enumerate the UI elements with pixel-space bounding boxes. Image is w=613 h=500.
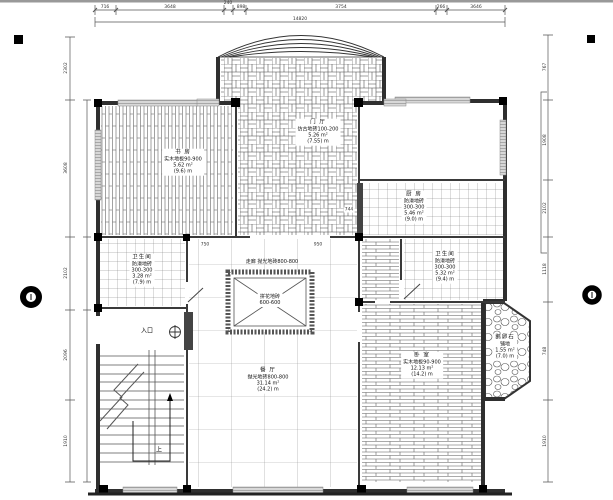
column (94, 304, 102, 312)
room-area: 5.32 m² (435, 270, 456, 276)
room-label-dining: 餐 厅 抛光地砖800-800 31.14 m² (24.2) m (246, 367, 291, 394)
room-spec: 实木地板90-900 (164, 156, 202, 162)
column (94, 99, 102, 107)
closet-floor-hatch (362, 239, 399, 300)
room-label-pebble: 鹅卵石 铺地 1.55 m² (7.0) m (493, 334, 517, 361)
dim-text: 1118 (542, 263, 548, 275)
room-area: 1.55 m² (495, 347, 515, 353)
dim-text: 1910 (542, 435, 548, 447)
dim-text: 898 (237, 4, 246, 10)
window-right-wall (500, 120, 506, 175)
medallion-label: 拼花地砖 600-600 (258, 293, 283, 307)
room-perimeter: (9.4) m (435, 276, 456, 282)
room-label-study: 书 房 实木地板90-900 5.62 m² (9.6) m (162, 149, 204, 176)
room-spec: 实木地板90-900 (403, 359, 441, 365)
room-name: 鹅卵石 (495, 335, 515, 342)
room-name: 卫生间 (435, 252, 456, 259)
inline-dim: 950 (313, 243, 324, 248)
column (355, 298, 363, 306)
room-area: 5.46 m² (404, 210, 425, 216)
room-spec: 仿古地砖100-200 (298, 126, 339, 132)
corner-marker-right (587, 35, 595, 43)
room-size: 300-300 (435, 264, 456, 270)
room-label-bath1: 卫生间 防滑地砖 300-300 3.28 m² (7.9) m (130, 254, 155, 287)
entry-label: 入口 (139, 326, 155, 335)
arched-bay-window (218, 36, 384, 58)
room-size: 300-300 (132, 267, 153, 273)
room-spec: 防滑地砖 (435, 258, 456, 264)
room-perimeter: (7.9) m (132, 279, 153, 285)
room-perimeter: (14.2) m (403, 371, 441, 377)
entry-wall-band (184, 312, 193, 350)
dim-text: 3754 (335, 4, 347, 10)
room-label-bath2: 卫生间 防滑地砖 300-300 5.32 m² (9.4) m (433, 251, 458, 284)
room-label-kitchen: 厨 房 防滑地砖 300-300 5.46 m² (9.0) m (402, 191, 427, 224)
dim-text: 3648 (164, 4, 176, 10)
window-top-edge (0, 0, 613, 3)
room-perimeter: (9.6) m (164, 168, 202, 174)
stairs-up-label: 上 (154, 445, 164, 454)
bedroom-floor-hatch (362, 304, 481, 482)
room-name: 厨 房 (404, 192, 425, 199)
column (355, 233, 363, 241)
inline-dim: 744 (344, 208, 355, 213)
bay-sill-right (384, 99, 406, 106)
corner-marker-left (14, 35, 23, 44)
room-perimeter: (9.0) m (404, 216, 425, 222)
room-name: 卧 室 (403, 353, 441, 360)
room-label-bedroom: 卧 室 实木地板90-900 12.13 m² (14.2) m (401, 352, 443, 379)
entry-level-symbol (170, 325, 181, 339)
room-spec: 防滑地砖 (404, 198, 425, 204)
room-perimeter: (7.0) m (495, 353, 515, 359)
dim-text: 3608 (63, 162, 69, 174)
room-size: 300-300 (404, 204, 425, 210)
room-perimeter: (24.2) m (248, 386, 289, 392)
room-name: 餐 厅 (248, 368, 289, 375)
dim-text: 240 (224, 0, 233, 6)
floor-plan-drawing: 716 3648 240 898 3754 266 3646 14820 230… (0, 0, 613, 500)
room-perimeter: (7.55) m (298, 138, 339, 144)
room-spec: 防滑地砖 (132, 261, 153, 267)
room-name: 卫生间 (132, 255, 153, 262)
column (354, 98, 363, 107)
kitchen-wall-band (357, 183, 363, 235)
dim-text: 3646 (470, 4, 482, 10)
inline-dim: 750 (200, 243, 211, 248)
stairs-up-arrow (167, 393, 173, 401)
window-left-wall (95, 130, 101, 200)
foyer-bay-floor-hatch (221, 58, 382, 104)
bay-sill-left (197, 99, 219, 106)
medallion-line2: 600-600 (260, 300, 281, 306)
floor-plan-canvas: 716 3648 240 898 3754 266 3646 14820 230… (0, 0, 613, 500)
room-name: 书 房 (164, 150, 202, 157)
dim-text: 266 (437, 4, 446, 10)
room-name: 门 厅 (298, 120, 339, 127)
dim-total-text: 14820 (293, 16, 307, 22)
column (231, 98, 240, 107)
column (183, 234, 190, 241)
column (499, 97, 507, 105)
room-spec: 抛光地砖800-800 (248, 374, 289, 380)
dim-text: 767 (542, 63, 548, 72)
room-label-foyer: 门 厅 仿古地砖100-200 5.26 m² (7.55) m (296, 119, 341, 146)
dim-text: 2096 (63, 349, 69, 361)
room-area: 3.28 m² (132, 273, 153, 279)
dim-text: 2302 (63, 62, 69, 74)
kitchen-floor-hatch (362, 183, 503, 235)
corridor-note: 走廊 抛光地砖800-800 (244, 258, 300, 266)
dim-text: 2102 (63, 267, 69, 279)
dim-text: 1910 (63, 435, 69, 447)
dim-text: 716 (101, 4, 110, 10)
column (94, 233, 102, 241)
stairs (100, 350, 184, 465)
window-top-left (118, 100, 198, 106)
dim-text: 1908 (542, 134, 548, 146)
dim-text: 2102 (542, 202, 548, 214)
dim-text: 748 (542, 347, 548, 356)
